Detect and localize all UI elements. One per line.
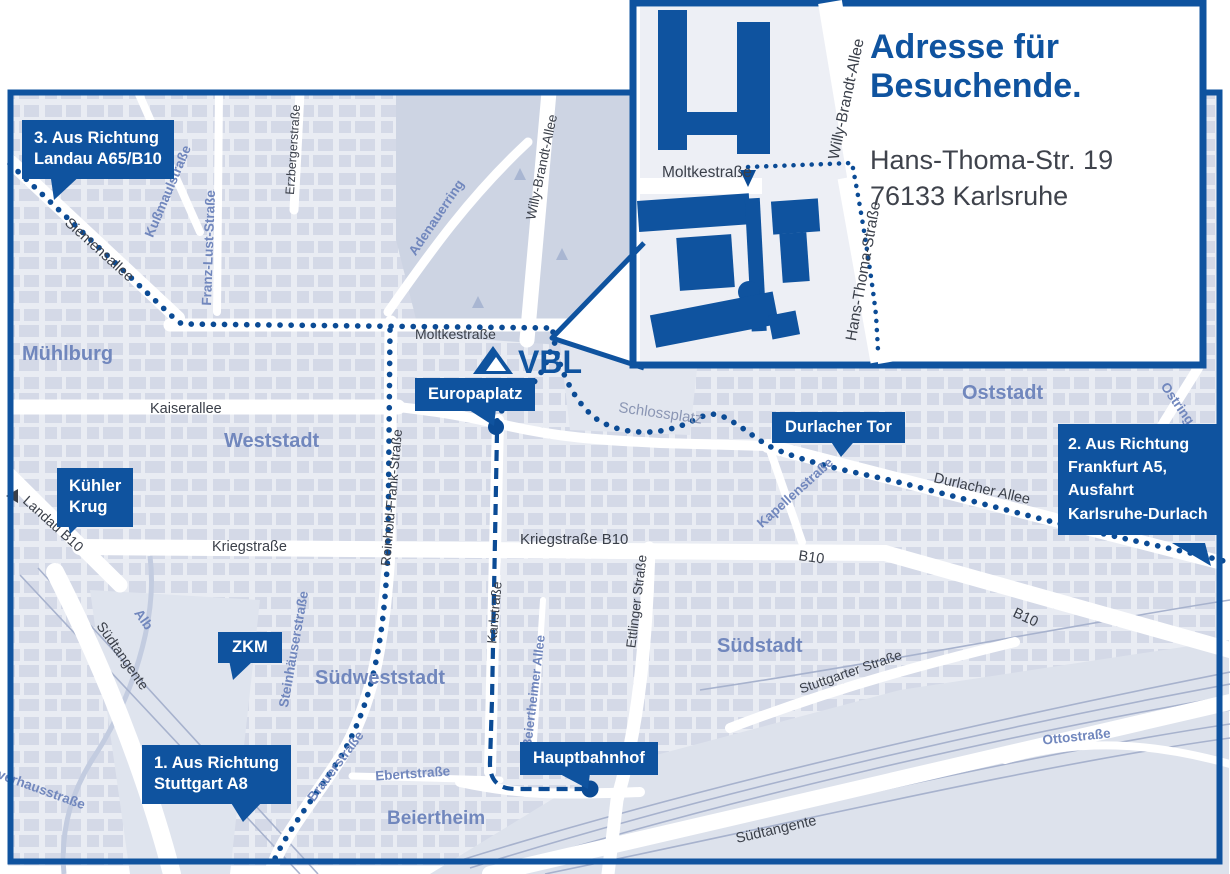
inset-title-line: Besuchende. xyxy=(870,67,1082,106)
callout-europaplatz: Europaplatz xyxy=(415,378,535,411)
callout-route-3-landau: 3. Aus Richtung Landau A65/B10 xyxy=(22,120,174,179)
callout-line: Karlsruhe-Durlach xyxy=(1068,503,1208,526)
callout-line: 3. Aus Richtung xyxy=(34,128,162,149)
callout-line: Ausfahrt xyxy=(1068,479,1208,502)
callout-durlacher-tor: Durlacher Tor xyxy=(772,412,905,443)
vbl-logo-text: VBL xyxy=(518,344,582,380)
label-kriegstrasse: Kriegstraße xyxy=(212,539,287,555)
callout-line: Durlacher Tor xyxy=(785,417,892,438)
label-weststadt: Weststadt xyxy=(224,430,320,452)
callout-line: 1. Aus Richtung xyxy=(154,753,279,774)
callout-line: 2. Aus Richtung xyxy=(1068,433,1208,456)
callout-line: ZKM xyxy=(232,637,268,658)
callout-line: Frankfurt A5, xyxy=(1068,456,1208,479)
callout-hauptbahnhof: Hauptbahnhof xyxy=(520,742,658,775)
visitor-address: Hans-Thoma-Str. 19 76133 Karlsruhe xyxy=(870,142,1113,215)
city-map-canvas: Moltkestraße Kaiserallee Kriegstraße Kri… xyxy=(0,0,1230,874)
callout-line: Europaplatz xyxy=(428,384,522,405)
label-beiertheim: Beiertheim xyxy=(387,808,485,829)
address-street: Hans-Thoma-Str. 19 xyxy=(870,142,1113,178)
callout-line: Hauptbahnhof xyxy=(533,748,645,769)
street-kriegstrasse xyxy=(80,547,885,553)
callout-line: Kühler xyxy=(69,476,121,497)
callout-route-1-stuttgart: 1. Aus Richtung Stuttgart A8 xyxy=(142,745,291,804)
callout-route-2-frankfurt: 2. Aus Richtung Frankfurt A5, Ausfahrt K… xyxy=(1058,424,1218,535)
label-suedweststadt: Südweststadt xyxy=(315,667,445,689)
inset-label-moltkestrasse: Moltkestraße xyxy=(662,164,752,181)
inset-title-line: Adresse für xyxy=(870,28,1082,67)
label-muehlburg: Mühlburg xyxy=(22,343,113,365)
callout-line: Krug xyxy=(69,497,121,518)
callout-zkm: ZKM xyxy=(218,632,282,663)
label-oststadt: Oststadt xyxy=(962,382,1043,404)
label-suedstadt: Südstadt xyxy=(717,635,803,657)
callout-line: Stuttgart A8 xyxy=(154,774,279,795)
callout-line: Landau A65/B10 xyxy=(34,149,162,170)
address-city: 76133 Karlsruhe xyxy=(870,178,1113,214)
label-moltkestrasse: Moltkestraße xyxy=(415,326,496,342)
inset-title: Adresse für Besuchende. xyxy=(870,28,1082,106)
callout-kuehler-krug: Kühler Krug xyxy=(57,468,133,527)
label-kaiserallee: Kaiserallee xyxy=(150,401,222,417)
label-kriegstrasse-b10: Kriegstraße B10 xyxy=(520,531,628,548)
